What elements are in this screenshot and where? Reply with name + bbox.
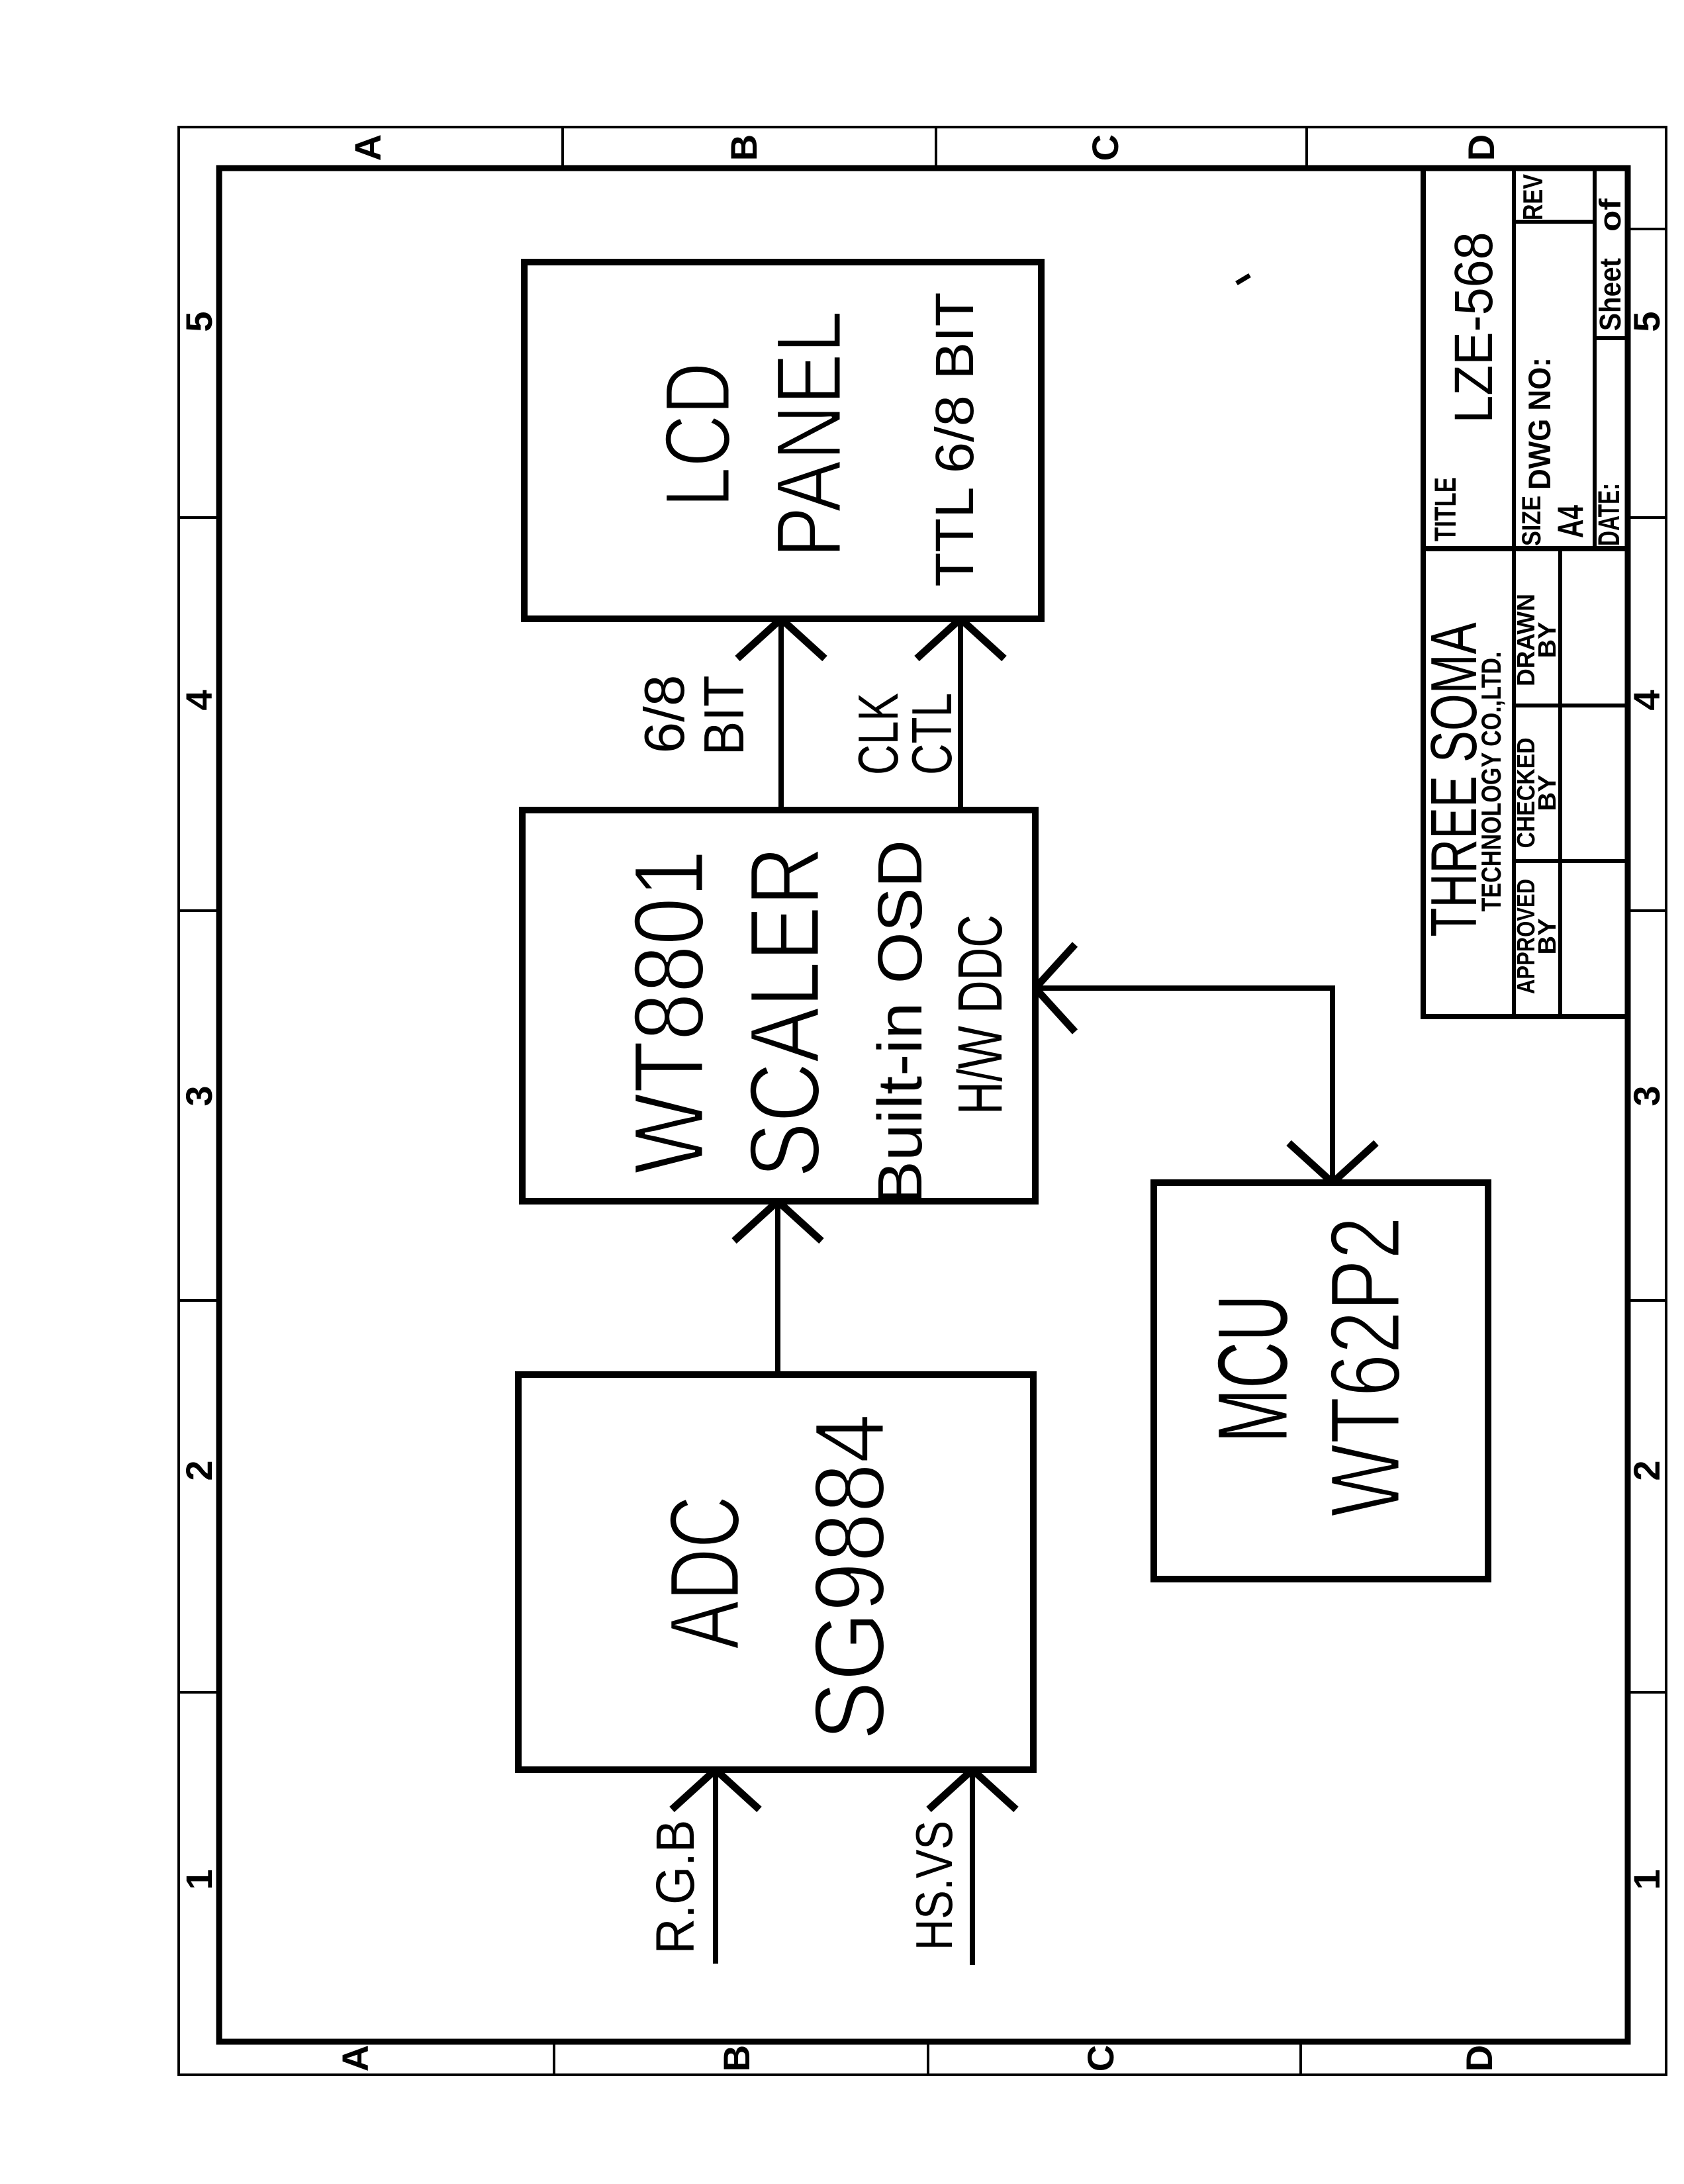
- svg-text:1: 1: [178, 1869, 220, 1889]
- svg-text:4: 4: [1626, 690, 1667, 710]
- svg-text:PANEL: PANEL: [757, 310, 861, 558]
- svg-text:4: 4: [178, 690, 220, 710]
- svg-text:3: 3: [1626, 1085, 1667, 1106]
- svg-text:5: 5: [178, 311, 220, 332]
- svg-text:2: 2: [178, 1460, 220, 1480]
- svg-text:2: 2: [1626, 1460, 1667, 1480]
- svg-text:3: 3: [178, 1085, 220, 1106]
- svg-text:of: of: [1593, 198, 1627, 232]
- svg-text:WT8801: WT8801: [613, 850, 724, 1174]
- svg-text:REV: REV: [1517, 174, 1548, 220]
- svg-text:BY: BY: [1534, 919, 1562, 955]
- svg-text:HS.VS: HS.VS: [905, 1821, 963, 1950]
- svg-text:TTL 6/8 BIT: TTL 6/8 BIT: [925, 293, 985, 587]
- svg-text:DWG NO:: DWG NO:: [1522, 357, 1557, 490]
- svg-text:ADC: ADC: [649, 1496, 760, 1649]
- svg-text:Built-in OSD: Built-in OSD: [865, 840, 935, 1205]
- svg-text:6/8: 6/8: [633, 675, 696, 754]
- svg-text:5: 5: [1626, 311, 1667, 332]
- svg-text:BY: BY: [1534, 775, 1562, 811]
- svg-text:WT62P2: WT62P2: [1309, 1216, 1421, 1517]
- svg-text:D: D: [1458, 2045, 1500, 2071]
- svg-text:LZE-568: LZE-568: [1444, 232, 1504, 424]
- svg-text:B: B: [716, 2045, 757, 2071]
- svg-text:C: C: [1084, 134, 1126, 161]
- svg-text:SG9884: SG9884: [794, 1414, 905, 1741]
- svg-text:1: 1: [1626, 1869, 1667, 1889]
- svg-text:A4: A4: [1550, 505, 1591, 538]
- svg-text:A: A: [334, 2045, 376, 2071]
- svg-text:R.G.B: R.G.B: [645, 1820, 706, 1954]
- svg-text:SCALER: SCALER: [729, 846, 840, 1178]
- svg-text:TITLE: TITLE: [1428, 477, 1462, 541]
- svg-text:SIZE: SIZE: [1517, 496, 1546, 546]
- svg-text:C: C: [1080, 2045, 1121, 2071]
- svg-text:A: A: [347, 134, 389, 161]
- svg-text:CTL: CTL: [901, 693, 964, 775]
- svg-text:BY: BY: [1534, 622, 1562, 659]
- svg-text:Sheet: Sheet: [1593, 258, 1627, 331]
- svg-text:LCD: LCD: [645, 363, 749, 508]
- svg-text:H/W DDC: H/W DDC: [945, 915, 1015, 1115]
- svg-text:BIT: BIT: [693, 676, 756, 756]
- svg-text:DATE:: DATE:: [1592, 483, 1626, 546]
- svg-text:MCU: MCU: [1197, 1295, 1308, 1443]
- svg-text:TECHNOLOGY CO.,LTD.: TECHNOLOGY CO.,LTD.: [1475, 652, 1507, 912]
- svg-text:B: B: [723, 134, 765, 161]
- svg-text:D: D: [1460, 134, 1502, 161]
